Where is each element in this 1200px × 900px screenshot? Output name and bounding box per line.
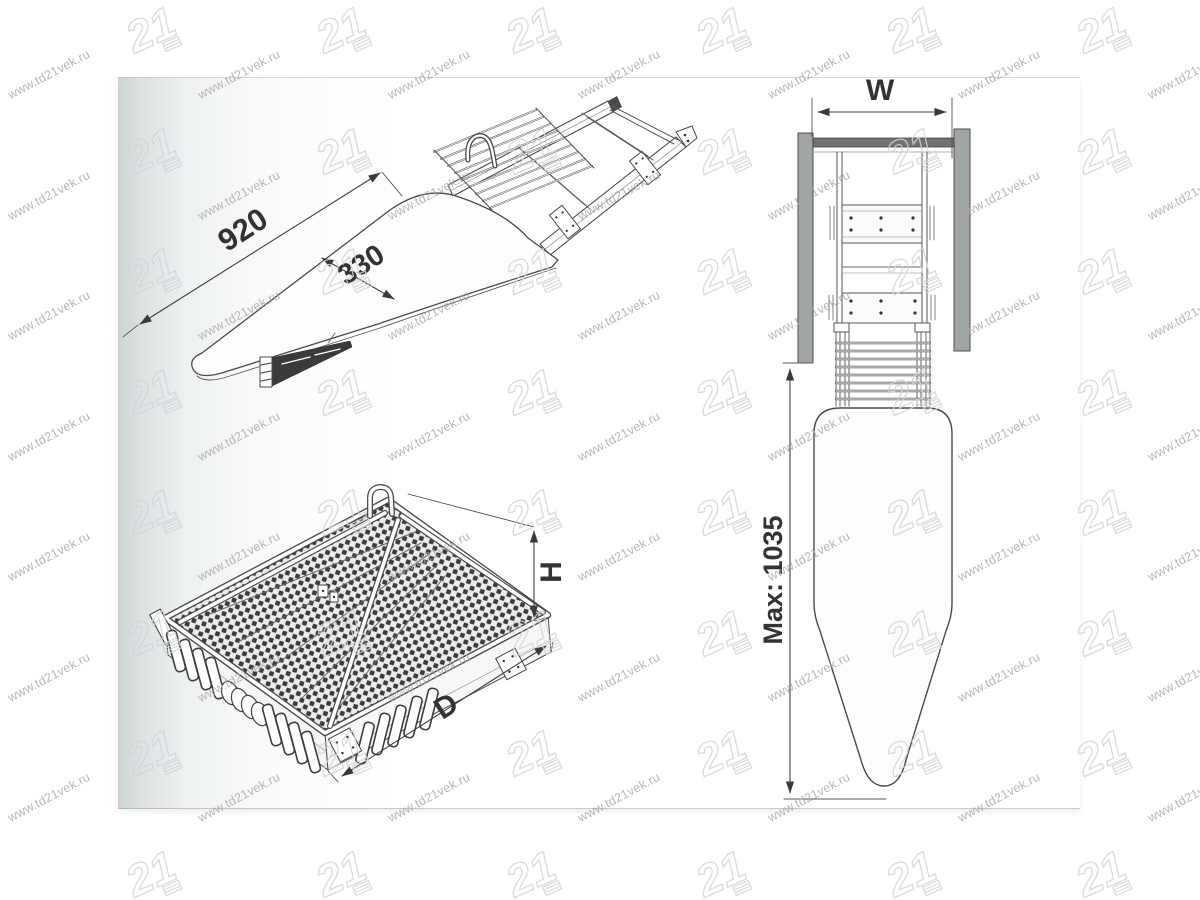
length-label: 920 — [212, 201, 274, 259]
cabinet-right-panel — [954, 129, 970, 351]
cabinet-top-rail — [813, 138, 954, 147]
lower-mount-plate — [829, 267, 935, 323]
folded-view: H D — [150, 487, 568, 782]
folded-rack — [834, 323, 930, 406]
board-front-outline — [814, 408, 952, 786]
height-label: H — [535, 561, 568, 583]
scanned-technical-drawing: 920 330 — [0, 0, 1200, 900]
front-slide-beam — [540, 126, 697, 255]
cabinet-left-panel — [798, 133, 813, 363]
max-length-label: Max: 1035 — [758, 515, 788, 644]
ironing-board-drawing: 920 330 — [0, 0, 1200, 900]
extended-view: 920 330 — [123, 96, 697, 387]
upper-mount-plate — [830, 205, 934, 243]
front-view: W Max: 1035 — [758, 74, 970, 799]
cabinet-width-label: W — [866, 74, 895, 107]
